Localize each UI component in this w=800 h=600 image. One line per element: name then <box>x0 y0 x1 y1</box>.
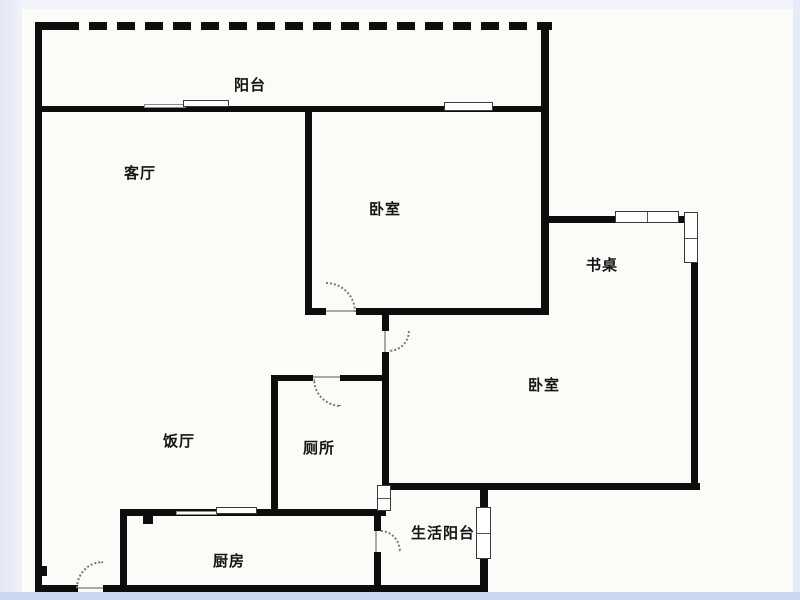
room-label-desk: 书桌 <box>586 257 618 276</box>
balcony-slider-window-right <box>183 100 229 107</box>
margin-strip-top <box>0 0 800 9</box>
wall-central-b <box>382 352 389 483</box>
wall-service-balcony-right-a <box>480 483 488 510</box>
window-mullion <box>477 533 490 534</box>
wall-left-notch <box>42 566 47 576</box>
wall-service-balcony-right-b <box>480 558 488 592</box>
wall-balcony-open-edge-dashed <box>61 22 552 30</box>
service-balcony-window <box>476 507 491 559</box>
wall-toilet-top-b <box>340 375 389 381</box>
wall-toilet-left <box>271 375 278 515</box>
margin-strip-left <box>0 0 22 600</box>
entry-door-arc <box>76 561 103 588</box>
wall-service-divider-a <box>374 516 381 531</box>
room-label-living-room: 客厅 <box>124 165 156 184</box>
wall-central-a <box>382 313 389 331</box>
bedroom-top-door-arc <box>326 282 356 312</box>
toilet-door-opening <box>313 376 340 378</box>
window-mullion <box>647 212 648 222</box>
room-label-kitchen: 厨房 <box>213 553 245 572</box>
service-balcony-door-opening <box>375 531 377 552</box>
window-mullion <box>685 238 697 239</box>
wall-kitchen-left <box>120 509 127 592</box>
service-balcony-door-arc <box>381 530 401 552</box>
toilet-small-window <box>377 485 391 511</box>
room-label-service-balcony: 生活阳台 <box>411 525 475 544</box>
room-label-bedroom-right: 卧室 <box>528 377 560 396</box>
bedroom-right-door-opening <box>384 331 386 352</box>
desk-right-window <box>684 212 698 263</box>
room-label-dining-room: 饭厅 <box>163 433 195 452</box>
margin-strip-bottom <box>0 592 800 600</box>
window-mullion <box>378 498 390 499</box>
wall-balcony-right <box>541 24 549 313</box>
desk-top-window <box>615 211 679 223</box>
room-label-balcony: 阳台 <box>234 77 266 96</box>
floor-plan-canvas: 阳台 客厅 卧室 书桌 卧室 饭厅 厕所 生活阳台 厨房 <box>0 0 800 600</box>
wall-balcony-open-edge-start <box>35 22 61 30</box>
bedroom-right-door-arc <box>389 331 410 352</box>
wall-bottom-exterior-a <box>35 585 78 592</box>
wall-bedroom-top-left <box>305 108 312 313</box>
wall-kitchen-stub <box>143 516 153 524</box>
kitchen-slider-window-left <box>176 511 217 515</box>
wall-bedroom-top-bottom-a <box>305 308 326 315</box>
wall-service-divider-b <box>374 552 381 592</box>
wall-bottom-exterior-b <box>103 585 488 592</box>
bedroom-top-window <box>444 102 493 111</box>
room-label-toilet: 厕所 <box>303 440 335 459</box>
wall-bedroom-right-bottom <box>382 483 700 490</box>
balcony-slider-window-left <box>144 104 186 108</box>
room-label-bedroom-top: 卧室 <box>369 201 401 220</box>
wall-left-exterior <box>35 22 42 592</box>
margin-strip-right <box>793 0 800 600</box>
toilet-door-arc <box>313 379 341 407</box>
kitchen-slider-window-right <box>216 507 257 514</box>
